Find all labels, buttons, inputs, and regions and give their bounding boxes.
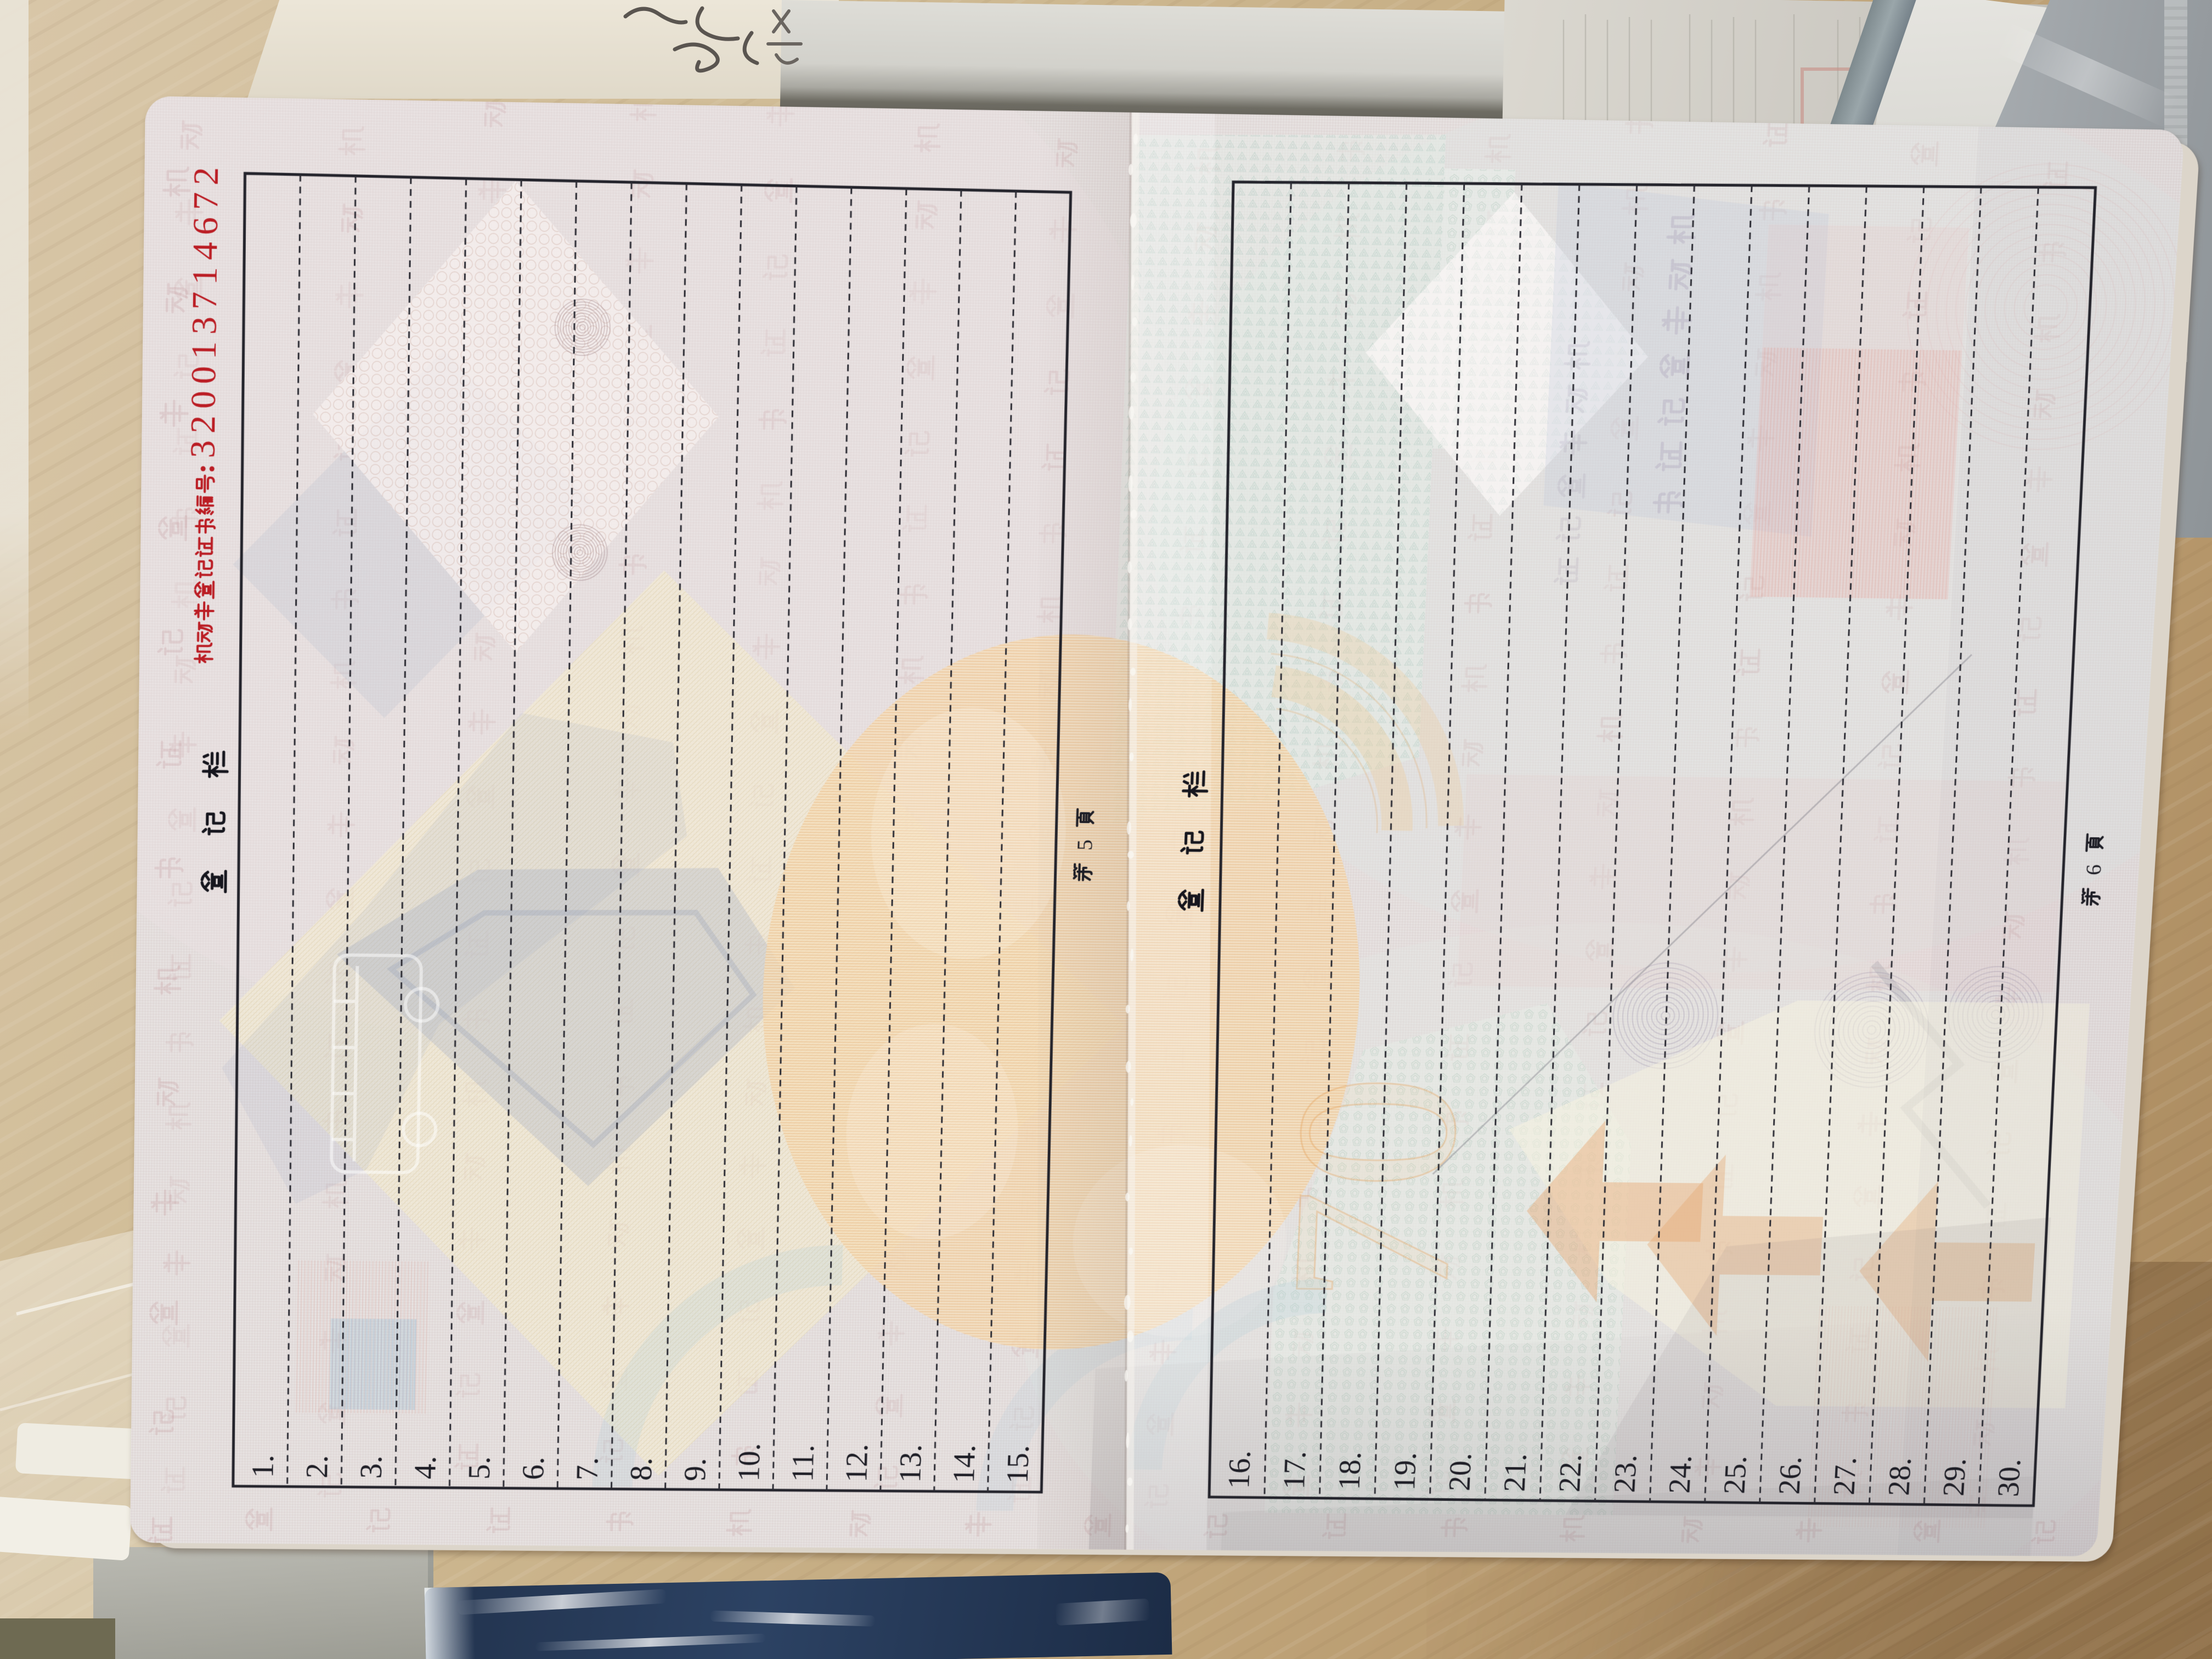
svg-text:24.: 24. bbox=[1662, 1455, 1698, 1494]
svg-text:19.: 19. bbox=[1387, 1452, 1423, 1491]
svg-text:70: 70 bbox=[1242, 1073, 1505, 1306]
svg-text:21.: 21. bbox=[1497, 1453, 1533, 1492]
svg-text:18.: 18. bbox=[1332, 1452, 1368, 1490]
svg-text:13.: 13. bbox=[893, 1444, 928, 1482]
svg-text:20.: 20. bbox=[1442, 1453, 1478, 1491]
svg-text:29.: 29. bbox=[1937, 1458, 1972, 1497]
svg-text:5.: 5. bbox=[462, 1456, 496, 1480]
svg-text:8.: 8. bbox=[624, 1458, 658, 1481]
svg-text:28.: 28. bbox=[1882, 1458, 1917, 1496]
svg-text:26.: 26. bbox=[1772, 1457, 1808, 1495]
svg-text:25.: 25. bbox=[1717, 1456, 1753, 1494]
svg-text:6.: 6. bbox=[516, 1457, 550, 1480]
svg-text:320013714672: 320013714672 bbox=[183, 160, 226, 459]
svg-text:3.: 3. bbox=[353, 1455, 388, 1479]
svg-text:7.: 7. bbox=[569, 1457, 604, 1481]
svg-text:22.: 22. bbox=[1552, 1454, 1588, 1492]
svg-text:14.: 14. bbox=[946, 1444, 981, 1483]
svg-text:2.: 2. bbox=[300, 1455, 334, 1479]
svg-text:12.: 12. bbox=[839, 1444, 874, 1482]
svg-text:6: 6 bbox=[2081, 864, 2106, 875]
svg-text:5: 5 bbox=[1073, 839, 1097, 850]
svg-text:23.: 23. bbox=[1607, 1454, 1643, 1493]
svg-text:16.: 16. bbox=[1221, 1451, 1257, 1489]
svg-text:11.: 11. bbox=[785, 1444, 820, 1482]
svg-text:1.: 1. bbox=[245, 1454, 280, 1478]
svg-text:30.: 30. bbox=[1991, 1459, 2027, 1497]
svg-text:9.: 9. bbox=[678, 1458, 712, 1481]
svg-text:17.: 17. bbox=[1277, 1451, 1312, 1489]
svg-text:10.: 10. bbox=[731, 1443, 766, 1481]
svg-text:15.: 15. bbox=[1000, 1445, 1035, 1483]
svg-text:4.: 4. bbox=[408, 1456, 442, 1480]
svg-text:27.: 27. bbox=[1827, 1457, 1863, 1496]
